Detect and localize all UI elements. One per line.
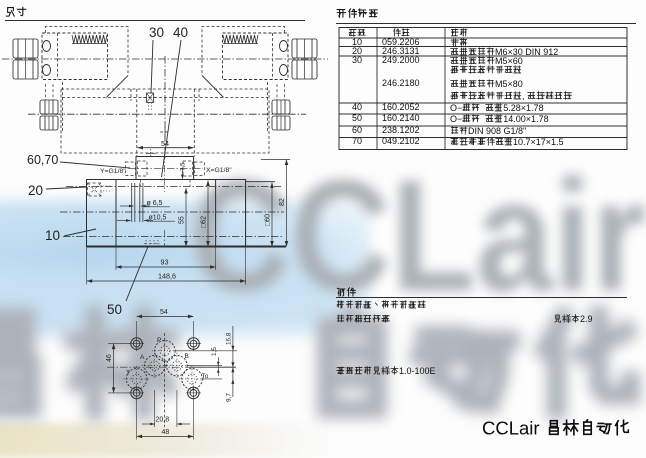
svg-text:□60: □60 — [265, 214, 272, 226]
svg-text:30: 30 — [149, 25, 164, 40]
svg-text:T: T — [126, 370, 130, 377]
svg-text:B: B — [185, 353, 189, 360]
svg-text:7,5: 7,5 — [180, 162, 187, 171]
svg-text:148,6: 148,6 — [158, 272, 176, 281]
svg-text:9,7: 9,7 — [226, 393, 233, 402]
svg-text:1,5: 1,5 — [211, 347, 218, 356]
svg-text:54: 54 — [161, 139, 169, 148]
svg-text:55: 55 — [179, 216, 186, 224]
svg-text:50: 50 — [107, 302, 122, 317]
svg-text:82: 82 — [279, 198, 286, 206]
svg-text:46: 46 — [106, 354, 113, 362]
svg-text:54: 54 — [160, 309, 168, 316]
svg-text:48: 48 — [162, 429, 170, 436]
svg-text:Y=G1/8": Y=G1/8" — [100, 168, 126, 175]
svg-text:20: 20 — [28, 183, 43, 198]
svg-text:X=G1/8": X=G1/8" — [206, 167, 232, 174]
svg-text:40: 40 — [173, 25, 188, 40]
svg-text:□62: □62 — [201, 216, 208, 228]
svg-text:20,8: 20,8 — [156, 417, 170, 424]
svg-text:A: A — [140, 354, 145, 361]
svg-text:60,70: 60,70 — [27, 153, 58, 167]
svg-text:16,8: 16,8 — [226, 332, 233, 345]
svg-text:10: 10 — [45, 228, 60, 243]
svg-text:P: P — [157, 337, 161, 344]
svg-text:93: 93 — [161, 258, 169, 267]
